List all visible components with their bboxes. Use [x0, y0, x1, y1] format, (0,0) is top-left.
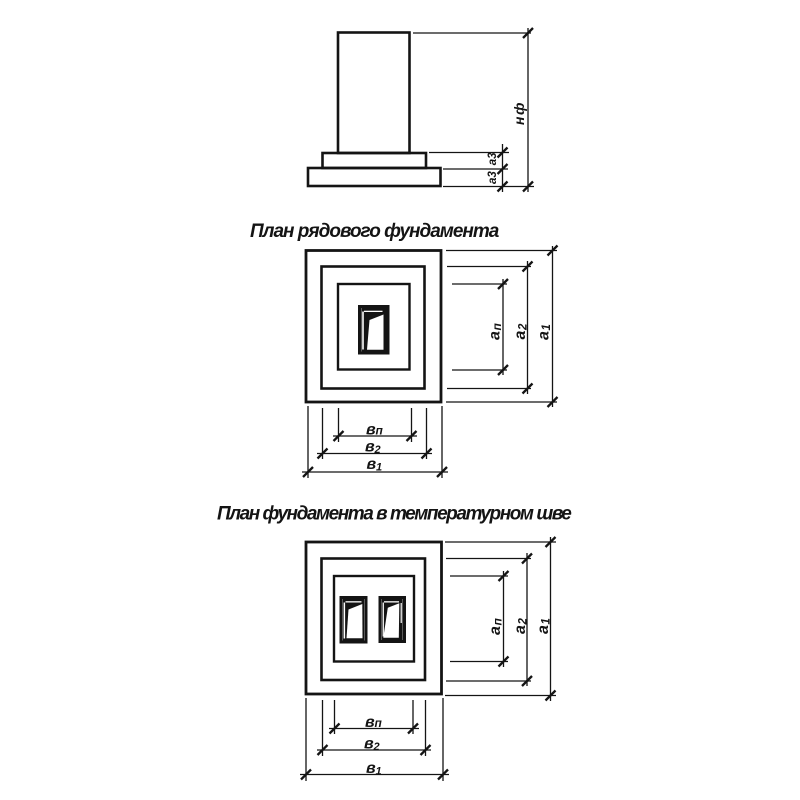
svg-text:в: в: [364, 736, 374, 753]
svg-text:План рядового фундамента: План рядового фундамента: [250, 221, 500, 242]
svg-text:а: а: [535, 625, 552, 634]
svg-text:а3: а3: [487, 152, 499, 165]
svg-text:а: а: [536, 331, 553, 340]
svg-text:в: в: [367, 456, 377, 473]
svg-text:а: а: [512, 331, 529, 340]
svg-text:в: в: [365, 714, 375, 731]
svg-text:нф: нф: [511, 101, 527, 125]
svg-text:п: п: [490, 323, 504, 331]
svg-text:1: 1: [376, 462, 382, 474]
svg-text:п: п: [376, 424, 384, 438]
svg-text:а3: а3: [487, 171, 499, 184]
svg-text:1: 1: [376, 766, 382, 778]
svg-text:в: в: [366, 760, 376, 777]
svg-text:План фундамента в температурно: План фундамента в температурном шве: [217, 504, 572, 525]
svg-text:в: в: [366, 422, 376, 439]
svg-text:а: а: [487, 626, 504, 635]
svg-text:а: а: [487, 331, 504, 340]
svg-text:а: а: [512, 625, 529, 634]
svg-text:2: 2: [518, 323, 530, 331]
svg-text:2: 2: [373, 741, 380, 753]
svg-text:п: п: [491, 618, 505, 626]
svg-text:2: 2: [518, 618, 530, 626]
svg-text:1: 1: [541, 324, 553, 330]
svg-text:п: п: [375, 716, 383, 730]
svg-text:в: в: [365, 439, 375, 456]
svg-text:2: 2: [374, 444, 381, 456]
svg-text:1: 1: [541, 618, 553, 624]
